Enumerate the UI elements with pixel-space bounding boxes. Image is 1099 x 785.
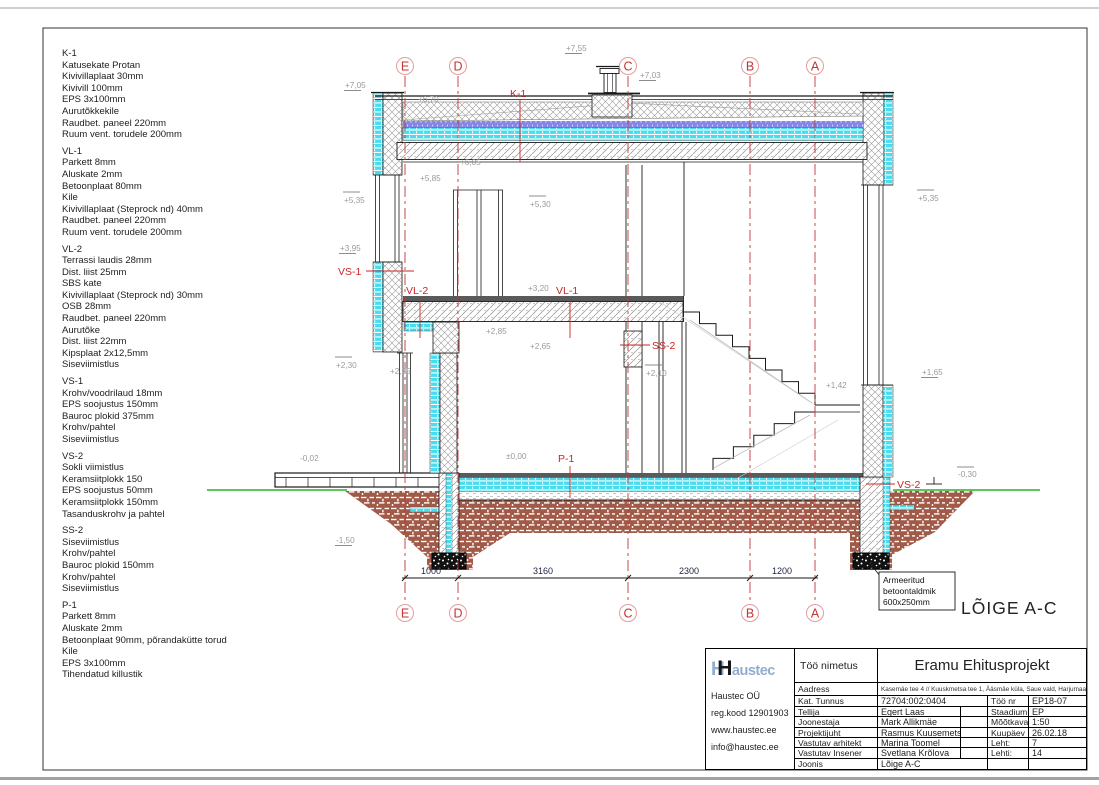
window-right <box>861 185 893 385</box>
row-value: Mark Allikmäe <box>877 717 960 727</box>
elev-mark: +5,30 <box>530 200 551 209</box>
annotation-line-2: betoontaldmik <box>883 586 937 596</box>
exterior-wall-left <box>373 93 402 352</box>
row-label: Projektijuht <box>795 728 877 737</box>
dim-b-a: 1200 <box>772 566 792 576</box>
address-label: Aadress <box>795 683 877 695</box>
drawing-name-row: Joonis Lõige A-C <box>795 758 1086 769</box>
empty-cell <box>1028 759 1086 769</box>
project-label: Töö nimetus <box>795 649 877 682</box>
label-vl1: VL-1 <box>556 285 578 297</box>
address-value: Kasemäe tee 4 // Kuuskmetsa tee 1, Ääsmä… <box>877 683 1086 695</box>
logo-h-dark: H <box>717 657 732 680</box>
section-title: LÕIGE A-C <box>961 597 1058 618</box>
empty-cell <box>987 759 1028 769</box>
architect-row: Vastutav arhitekt Marina Toomel Leht: 7 <box>795 737 1086 747</box>
elev-mark: +3,20 <box>528 284 549 293</box>
elev-mark: +5,35 <box>344 196 365 205</box>
elev-mark: -1,50 <box>336 536 355 545</box>
ground-wall-right <box>863 385 893 477</box>
row-label-2: Leht: <box>987 738 1028 747</box>
terrace-step <box>433 322 459 353</box>
elev-mark: +2,65 <box>530 342 551 351</box>
annotation-line-3: 600x250mm <box>883 597 930 607</box>
grid-letter-bottom-b: B <box>746 607 754 621</box>
spacer-cell <box>960 738 987 747</box>
cadastre-row: Kat. Tunnus 72704:002:0404 Töö nr EP18-0… <box>795 695 1086 706</box>
roof-assembly <box>371 93 894 163</box>
company-website[interactable]: www.haustec.ee <box>711 722 790 739</box>
drain-pipe-left <box>410 507 442 512</box>
row-value-2: 14 <box>1028 748 1086 758</box>
title-block-table: Töö nimetus Eramu Ehitusprojekt Aadress … <box>795 649 1086 769</box>
grid-letter-top-e: E <box>401 60 409 74</box>
ground-wall-left <box>430 353 457 473</box>
grid-letter-top-c: C <box>623 60 632 74</box>
elev-mark: +2,25 <box>390 367 411 376</box>
grid-letter-top-a: A <box>811 60 820 74</box>
elev-mark: -0,02 <box>300 454 319 463</box>
spacer-cell <box>960 717 987 727</box>
row-label-2: Kuupäev <box>987 728 1028 737</box>
label-k1: K-1 <box>510 88 527 100</box>
row-label: Kat. Tunnus <box>795 696 877 706</box>
grid-letter-bottom-a: A <box>811 607 820 621</box>
engineer-row: Vastutav Insener Svetlana Krõlova Lehti:… <box>795 747 1086 758</box>
row-label-2: Töö nr <box>987 696 1028 706</box>
annotation-line-1: Armeeritud <box>883 575 925 585</box>
elev-mark: +1,42 <box>826 381 847 390</box>
dim-c-b: 2300 <box>679 566 699 576</box>
project-row: Töö nimetus Eramu Ehitusprojekt <box>795 649 1086 682</box>
dim-e-d: 1000 <box>421 566 441 576</box>
drawing-name-label: Joonis <box>795 759 877 769</box>
grid-letter-top-d: D <box>453 60 462 74</box>
grid-letter-bottom-e: E <box>401 607 409 621</box>
company-reg: reg.kood 12901903 <box>711 705 790 722</box>
spacer-cell <box>960 707 987 716</box>
row-value: Egert Laas <box>877 707 960 716</box>
row-value: Svetlana Krõlova <box>877 748 960 758</box>
dim-d-c: 3160 <box>533 566 553 576</box>
elev-mark: +3,95 <box>340 244 361 253</box>
roof-vent <box>588 67 640 118</box>
project-title: Eramu Ehitusprojekt <box>877 649 1086 682</box>
project-manager-row: Projektijuht Rasmus Kuusemets Kuupäev 26… <box>795 727 1086 737</box>
row-label-2: Mõõtkava <box>987 717 1028 727</box>
row-value: Marina Toomel <box>877 738 960 747</box>
ground-slab-p1 <box>455 473 863 500</box>
row-value: Rasmus Kuusemets <box>877 728 960 737</box>
row-value-2: EP18-07 <box>1028 696 1086 706</box>
row-label: Joonestaja <box>795 717 877 727</box>
elev-mark: ±0,00 <box>506 452 527 461</box>
elev-mark: +2,10 <box>646 369 667 378</box>
window-middle <box>453 190 503 296</box>
row-value-2: 1:50 <box>1028 717 1086 727</box>
elev-mark: +6,05 <box>460 158 481 167</box>
elev-mark: +6,70 <box>418 95 439 104</box>
company-info: HHaustec Haustec OÜ reg.kood 12901903 ww… <box>706 649 795 769</box>
row-value-2: EP <box>1028 707 1086 716</box>
drawing-sheet: K-1 Katusekate ProtanKivivillaplaat 30mm… <box>0 0 1099 785</box>
elev-mark: +2,30 <box>336 361 357 370</box>
elev-mark: -0,30 <box>958 470 977 479</box>
label-ss2: SS-2 <box>652 340 676 352</box>
drafter-row: Joonestaja Mark Allikmäe Mõõtkava 1:50 <box>795 716 1086 727</box>
elev-mark: +5,35 <box>918 194 939 203</box>
row-label-2: Lehti: <box>987 748 1028 758</box>
row-label: Tellija <box>795 707 877 716</box>
client-row: Tellija Egert Laas Staadium EP <box>795 706 1086 716</box>
elev-mark: +7,05 <box>345 81 366 90</box>
address-row: Aadress Kasemäe tee 4 // Kuuskmetsa tee … <box>795 682 1086 695</box>
elev-mark: +7,55 <box>566 44 587 53</box>
terrace-deck <box>275 473 457 487</box>
company-email[interactable]: info@haustec.ee <box>711 739 790 756</box>
elev-mark: +5,85 <box>420 174 441 183</box>
grid-letter-top-b: B <box>746 60 754 74</box>
staircase <box>660 302 860 500</box>
grid-letter-bottom-d: D <box>453 607 462 621</box>
label-vl2: VL-2 <box>406 285 428 297</box>
drawing-name-value: Lõige A-C <box>877 759 987 769</box>
row-value: 72704:002:0404 <box>877 696 987 706</box>
terrace-layers <box>404 322 433 331</box>
ss2-wall-section <box>624 331 642 367</box>
elev-mark: +2,85 <box>486 327 507 336</box>
elev-mark: +1,65 <box>922 368 943 377</box>
title-block: HHaustec Haustec OÜ reg.kood 12901903 ww… <box>705 648 1087 770</box>
grid-letter-bottom-c: C <box>623 607 632 621</box>
label-vs1: VS-1 <box>338 266 362 278</box>
elev-mark: +7,03 <box>640 71 661 80</box>
window-left <box>373 175 402 262</box>
exterior-wall-right <box>861 93 893 385</box>
row-value-2: 7 <box>1028 738 1086 747</box>
label-p1: P-1 <box>558 453 575 465</box>
row-label-2: Staadium <box>987 707 1028 716</box>
spacer-cell <box>960 728 987 737</box>
logo-wordmark: austec <box>732 663 775 679</box>
spacer-cell <box>960 748 987 758</box>
haustec-logo: HHaustec <box>711 657 790 681</box>
company-name: Haustec OÜ <box>711 688 790 705</box>
row-value-2: 26.02.18 <box>1028 728 1086 737</box>
row-label: Vastutav Insener <box>795 748 877 758</box>
row-label: Vastutav arhitekt <box>795 738 877 747</box>
label-vs2: VS-2 <box>897 479 921 491</box>
